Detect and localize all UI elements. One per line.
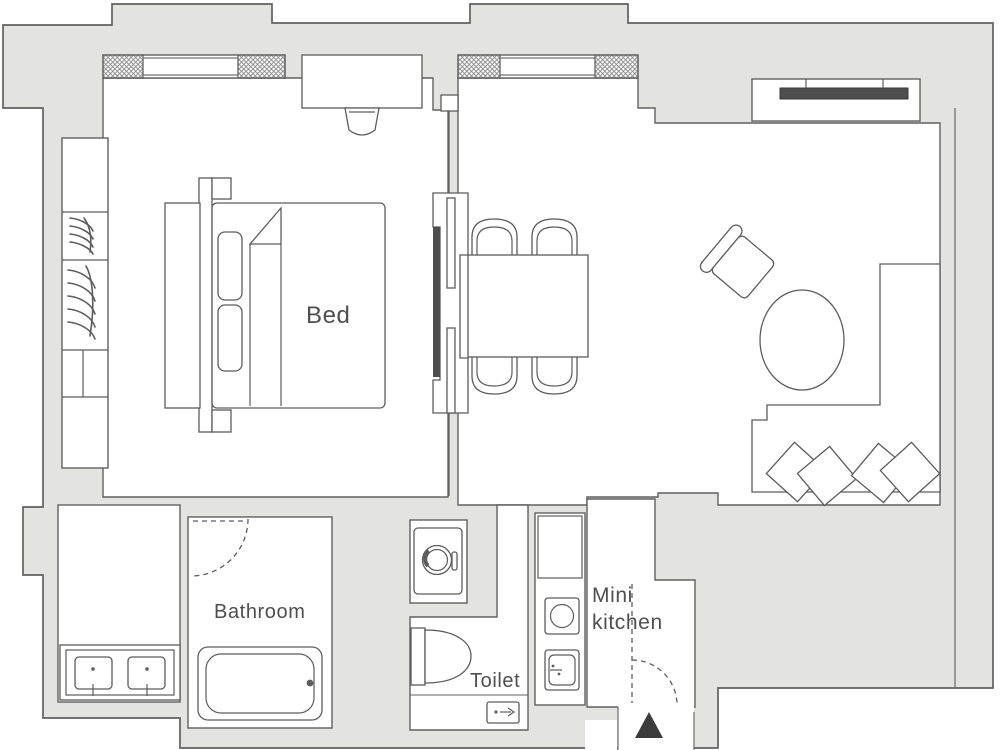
kitchen-label-line2: kitchen	[592, 611, 663, 634]
bathtub	[198, 647, 322, 720]
dining-table	[468, 255, 588, 357]
washing-machine	[414, 528, 462, 594]
dining-chair	[532, 219, 577, 258]
dining-chair	[472, 355, 517, 394]
tv-icon	[780, 88, 908, 99]
bed-rail	[199, 178, 212, 432]
wardrobe-niche	[62, 138, 108, 468]
kitchenette-stove	[545, 650, 579, 690]
partition-panel	[447, 328, 455, 413]
desk	[302, 55, 422, 108]
kitchenette-sink	[545, 598, 579, 634]
pillow-icon	[218, 305, 242, 371]
bedroom-label: Bed	[306, 302, 351, 329]
partition-track-block	[441, 95, 458, 111]
headboard	[165, 203, 200, 408]
entrance-side-step	[585, 720, 617, 750]
bedroom-window	[103, 55, 285, 78]
kitchen-label-line1: Mini	[592, 584, 633, 607]
floor-plan: Bed	[0, 0, 1000, 750]
partition-door-leaf	[433, 227, 440, 377]
bathroom-label: Bathroom	[214, 601, 306, 623]
dining-chair	[472, 219, 517, 258]
hand-basin	[487, 702, 519, 723]
floor-plan-page: Bed	[0, 0, 1000, 750]
washer-handle	[452, 552, 457, 570]
tv-niche	[752, 79, 920, 121]
bed: Bed	[165, 178, 385, 432]
double-sink-vanity	[60, 645, 180, 700]
partition-panel	[447, 198, 455, 288]
coffee-table	[760, 290, 844, 390]
radiator-hatch-icon	[595, 55, 638, 78]
toilet-label: Toilet	[470, 670, 520, 692]
radiator-hatch-icon	[458, 55, 500, 78]
nightstand	[212, 178, 231, 199]
radiator-hatch-icon	[103, 55, 143, 78]
nightstand	[212, 410, 231, 432]
dining-chair	[532, 355, 577, 394]
living-window	[458, 55, 638, 78]
drain-icon	[307, 680, 314, 687]
radiator-hatch-icon	[238, 55, 285, 78]
pillow-icon	[218, 232, 242, 300]
